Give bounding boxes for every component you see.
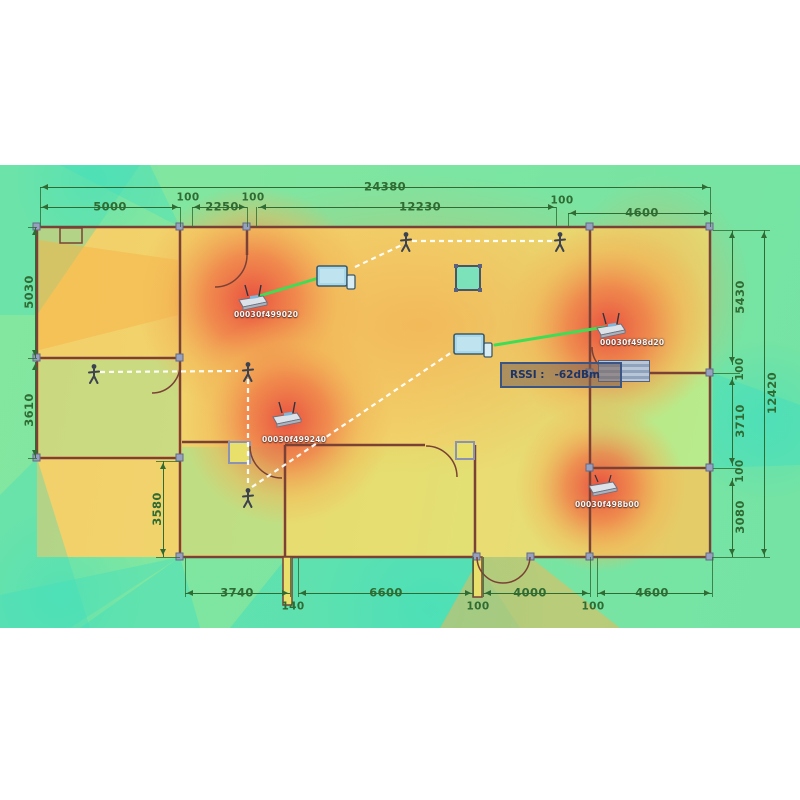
rssi-tooltip: RSSI : -62dBm	[500, 362, 622, 388]
person-marker-1[interactable]	[398, 231, 414, 257]
ap-label-4: 00030f498b00	[575, 500, 639, 509]
dimension-label: 100	[241, 192, 264, 204]
ap-label-3: 00030f499240	[262, 435, 326, 444]
rssi-tooltip-label: RSSI :	[510, 369, 545, 381]
dimension-label: 5030	[22, 275, 36, 309]
dimension-label: 4600	[625, 205, 659, 219]
floorplan-map[interactable]: 00030f499020 00030f498d20 00030f499240 0…	[0, 165, 800, 628]
dimension-label: 100	[734, 459, 746, 482]
rssi-tooltip-value: -62dBm	[555, 369, 600, 381]
router-icon	[594, 311, 628, 339]
access-point-1[interactable]	[236, 283, 270, 315]
table-square	[455, 265, 481, 291]
dimension-label: 100	[550, 195, 573, 207]
dimension-label: 3580	[150, 492, 164, 526]
laptop-device-2[interactable]	[452, 331, 496, 365]
dimension-label: 100	[466, 601, 489, 613]
dimension-label: 100	[734, 357, 746, 380]
access-point-4[interactable]	[586, 473, 620, 501]
dimension-label: 3740	[220, 585, 254, 599]
dimension-label: 140	[281, 601, 304, 613]
access-point-3[interactable]	[270, 400, 304, 432]
person-marker-4[interactable]	[240, 361, 256, 387]
person-marker-2[interactable]	[552, 231, 568, 257]
dimension-label: 4600	[635, 585, 669, 599]
router-icon	[270, 400, 304, 428]
dimension-label: 3610	[22, 393, 36, 427]
wifi-heatmap-screenshot: 00030f499020 00030f498d20 00030f499240 0…	[0, 0, 800, 800]
person-icon	[240, 361, 256, 383]
dimension-label: 5000	[93, 199, 127, 213]
dimension-label: 24380	[364, 179, 406, 193]
dimension-label: 5430	[733, 280, 747, 314]
dimension-label: 12420	[765, 372, 779, 414]
access-point-2[interactable]	[594, 311, 628, 343]
person-icon	[240, 487, 256, 509]
person-icon	[552, 231, 568, 253]
person-icon	[86, 363, 102, 385]
dimension-label: 6600	[369, 585, 403, 599]
dimension-label: 12230	[399, 199, 441, 213]
dimension-label: 3080	[733, 500, 747, 534]
laptop-icon	[452, 331, 496, 361]
person-icon	[398, 231, 414, 253]
dimension-label: 3710	[733, 404, 747, 438]
dimension-label: 100	[581, 601, 604, 613]
person-marker-5[interactable]	[240, 487, 256, 513]
laptop-icon	[315, 263, 359, 293]
dimension-label: 100	[176, 192, 199, 204]
dimension-label: 2250	[205, 199, 239, 213]
person-marker-3[interactable]	[86, 363, 102, 389]
router-icon	[586, 473, 620, 497]
laptop-device-1[interactable]	[315, 263, 359, 297]
router-icon	[236, 283, 270, 311]
dimension-label: 4000	[513, 585, 547, 599]
